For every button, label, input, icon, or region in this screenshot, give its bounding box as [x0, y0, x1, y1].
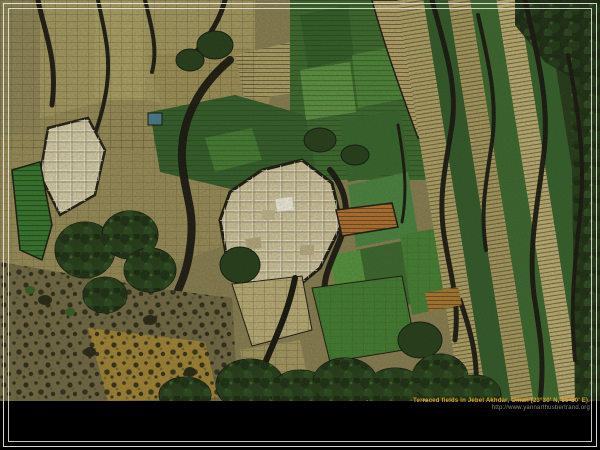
caption-url: http://www.yannarthusbertrand.org	[413, 405, 590, 412]
grain-overlay-light	[0, 0, 600, 401]
aerial-photo-terraced-fields	[0, 0, 600, 401]
photo-caption: Terraced fields in Jebel Akhdar, Oman (2…	[413, 398, 590, 412]
caption-title: Terraced fields in Jebel Akhdar, Oman (2…	[413, 398, 590, 405]
wallpaper: Terraced fields in Jebel Akhdar, Oman (2…	[0, 0, 600, 450]
